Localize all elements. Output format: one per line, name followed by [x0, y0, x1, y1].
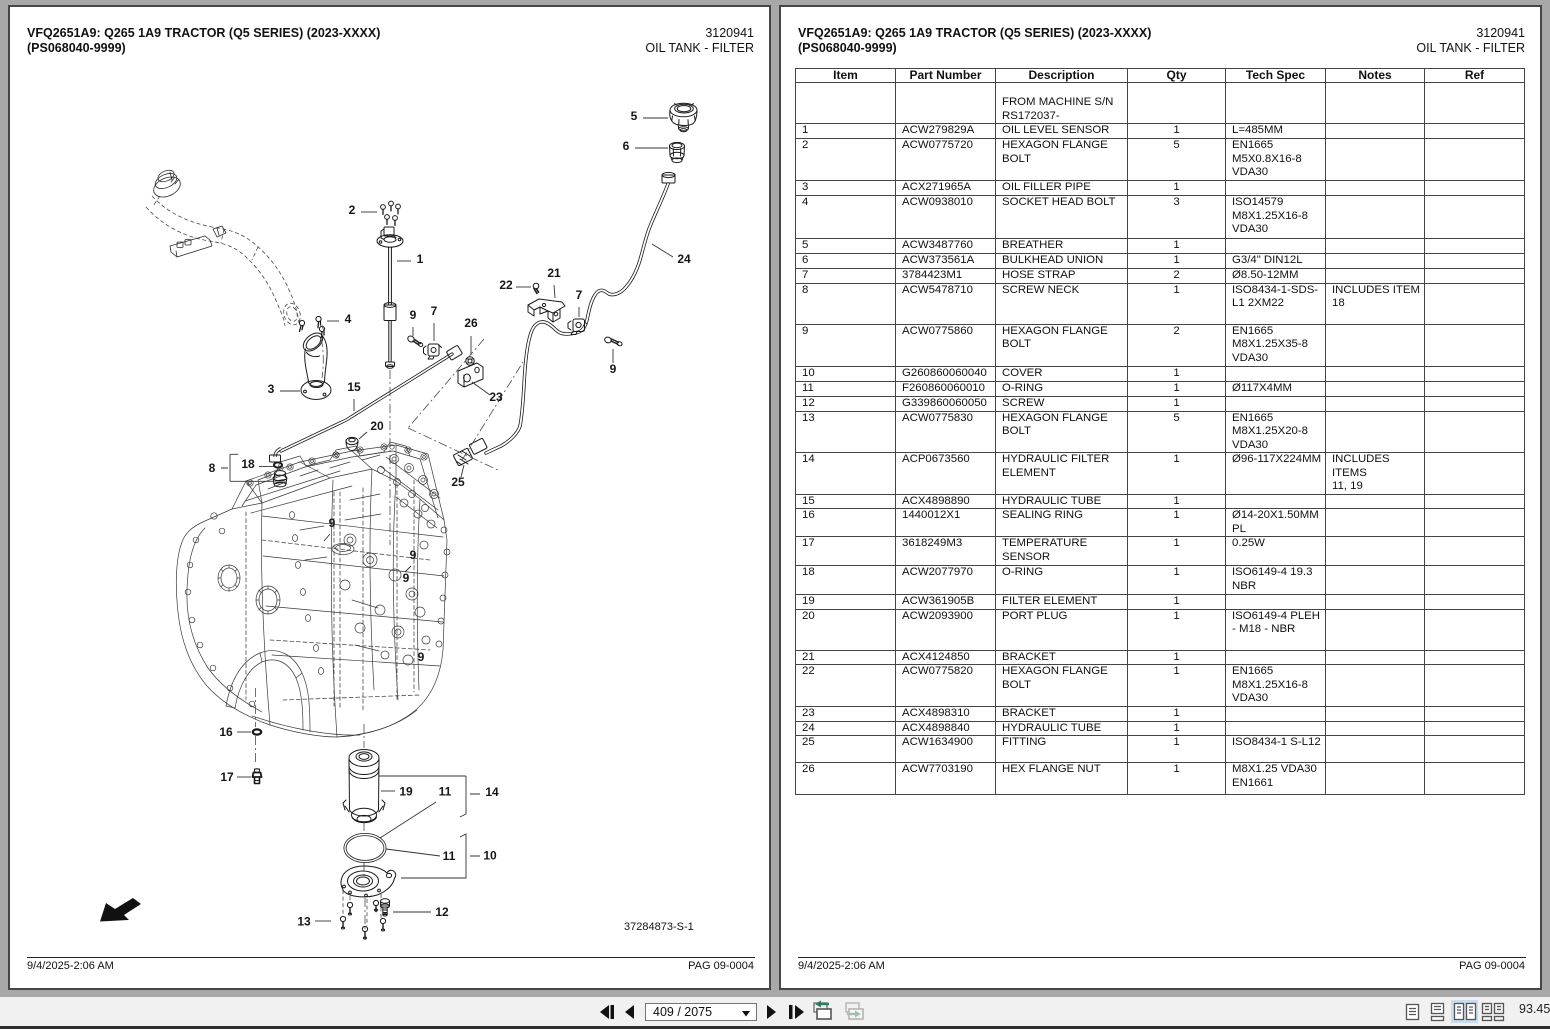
svg-text:1: 1	[417, 252, 424, 266]
svg-text:9: 9	[410, 548, 417, 562]
svg-text:19: 19	[399, 785, 413, 799]
svg-text:7: 7	[576, 288, 583, 302]
svg-text:9: 9	[410, 308, 417, 322]
svg-text:14: 14	[485, 785, 499, 799]
svg-text:17: 17	[220, 770, 234, 784]
svg-text:10: 10	[483, 849, 497, 863]
svg-text:3: 3	[268, 382, 275, 396]
svg-text:6: 6	[623, 139, 630, 153]
svg-text:18: 18	[241, 457, 255, 471]
svg-text:15: 15	[347, 380, 361, 394]
svg-text:9: 9	[610, 362, 617, 376]
svg-text:9: 9	[403, 571, 410, 585]
svg-text:13: 13	[297, 915, 311, 929]
svg-text:23: 23	[489, 390, 503, 404]
svg-text:16: 16	[219, 725, 233, 739]
svg-text:11: 11	[443, 849, 456, 863]
svg-text:24: 24	[677, 252, 691, 266]
svg-text:11: 11	[439, 785, 452, 799]
svg-text:7: 7	[431, 304, 438, 318]
svg-text:12: 12	[435, 905, 449, 919]
svg-text:26: 26	[464, 316, 478, 330]
svg-text:37284873-S-1: 37284873-S-1	[624, 921, 694, 933]
svg-text:2: 2	[349, 203, 356, 217]
svg-text:20: 20	[370, 419, 384, 433]
svg-text:5: 5	[631, 109, 638, 123]
svg-text:21: 21	[547, 266, 561, 280]
svg-text:9: 9	[329, 516, 336, 530]
svg-text:4: 4	[345, 312, 352, 326]
svg-text:9: 9	[418, 650, 425, 664]
svg-text:22: 22	[499, 278, 513, 292]
svg-text:8: 8	[209, 461, 216, 475]
svg-text:25: 25	[451, 475, 465, 489]
